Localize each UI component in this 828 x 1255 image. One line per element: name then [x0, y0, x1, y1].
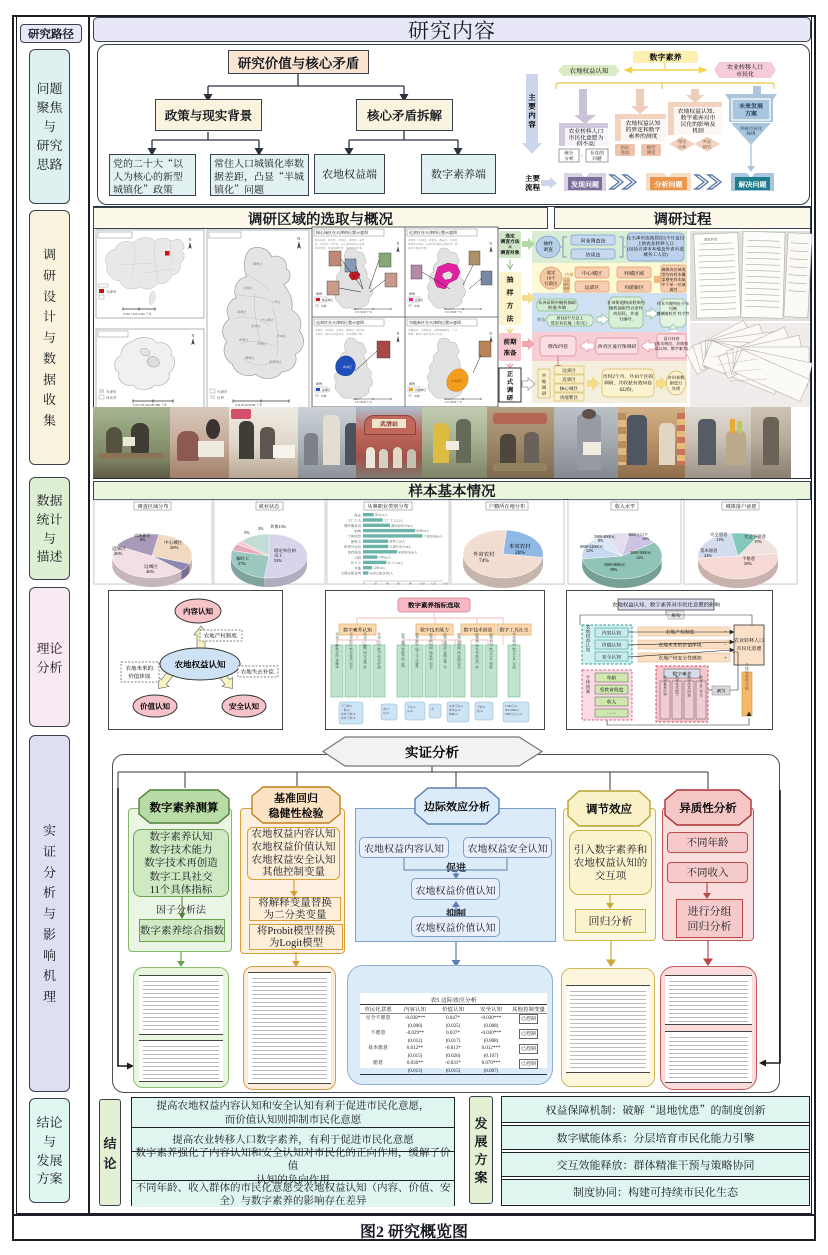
svg-text:滨海新区: 滨海新区 [451, 379, 463, 383]
svg-text:27%: 27% [238, 561, 246, 567]
svg-text:前期: 前期 [504, 337, 518, 346]
svg-text:城镇落户意愿: 城镇落户意愿 [725, 503, 757, 510]
svg-text:核心城区在天津的位置示意图: 核心城区在天津的位置示意图 [316, 230, 368, 236]
svg-text:调节效应: 调节效应 [586, 801, 632, 817]
svg-text:N: N [192, 333, 195, 339]
svg-text:功能新区: 功能新区 [624, 284, 644, 291]
svg-text:法: 法 [507, 314, 515, 324]
svg-text:非常了解=4: 非常了解=4 [341, 716, 356, 720]
svg-text:稳健性检验: 稳健性检验 [268, 805, 324, 821]
svg-text:是否有农地（有/无）: 是否有农地（有/无） [551, 321, 590, 327]
svg-text:15%: 15% [754, 539, 762, 545]
svg-text:基准回归: 基准回归 [274, 790, 318, 806]
svg-text:远郊区: 远郊区 [322, 388, 331, 392]
svg-text:0 15 30 60 千米: 0 15 30 60 千米 [355, 310, 372, 314]
svg-text:乡结合特征明显。: 乡结合特征明显。 [408, 246, 429, 250]
svg-text:数字素养认知: 数字素养认知 [343, 627, 372, 634]
svg-text:N: N [189, 237, 192, 243]
svg-text:调查: 调查 [543, 246, 553, 253]
svg-text:12%: 12% [636, 555, 644, 561]
svg-text:司机16人: 司机16人 [378, 555, 392, 560]
svg-text:市民化意愿: 市民化意愿 [736, 645, 761, 652]
svg-text:功能新区: 功能新区 [415, 388, 426, 392]
svg-text:40: 40 [386, 582, 390, 586]
svg-text:内容认知: 内容认知 [602, 630, 621, 637]
svg-text:农地未来的价值体现: 农地未来的价值体现 [658, 642, 701, 649]
svg-text:是否认可数字技术价值: 是否认可数字技术价值 [376, 632, 381, 670]
svg-text:调查问卷: 调查问卷 [704, 236, 718, 241]
svg-text:销售: 销售 [354, 528, 361, 533]
svg-text:流程: 流程 [525, 182, 540, 193]
svg-text:622份。: 622份。 [620, 386, 637, 393]
svg-text:个体因素: 个体因素 [585, 675, 591, 694]
svg-text:个体经营: 个体经营 [347, 534, 361, 539]
svg-text:收入水平: 收入水平 [615, 503, 636, 510]
svg-text:农地产权制度.: 农地产权制度. [204, 632, 239, 640]
svg-text:价值认知: 价值认知 [140, 701, 170, 712]
svg-text:熟练=3: 熟练=3 [449, 712, 458, 716]
svg-text:3%: 3% [258, 526, 264, 532]
svg-text:年龄: 年龄 [607, 675, 617, 682]
svg-text:宝坻区: 宝坻区 [243, 285, 253, 290]
svg-text:其他: 其他 [414, 304, 420, 308]
svg-text:调节: 调节 [716, 689, 726, 695]
svg-text:实证分析: 实证分析 [405, 741, 459, 761]
svg-text:西青区: 西青区 [239, 337, 249, 342]
svg-text:远郊区: 远郊区 [562, 368, 576, 374]
svg-text:安全认知: 安全认知 [602, 654, 621, 661]
svg-text:数字素养: 数字素养 [650, 52, 682, 63]
svg-text:……: …… [607, 710, 617, 717]
svg-text:0 15 30 60 千米: 0 15 30 60 千米 [445, 400, 462, 404]
svg-text:方案: 方案 [745, 109, 757, 118]
svg-text:保安: 保安 [354, 512, 361, 517]
svg-text:家政保洁38人: 家政保洁38人 [398, 549, 418, 554]
svg-text:数字技术创造: 数字技术创造 [686, 674, 691, 697]
svg-text:就业状态: 就业状态 [259, 503, 281, 510]
svg-text:+: + [580, 151, 584, 160]
svg-text:销售58人: 销售58人 [416, 528, 430, 533]
svg-text:74%: 74% [479, 556, 489, 564]
svg-text:52%: 52% [274, 558, 282, 564]
svg-text:是=2: 是=2 [383, 711, 389, 715]
svg-text:问题: 问题 [592, 156, 602, 162]
svg-text:快递外卖员28人: 快递外卖员28人 [389, 544, 412, 549]
svg-text:能否使用政务服务平台: 能否使用政务服务平台 [442, 632, 447, 670]
svg-text:农地权益认知: 农地权益认知 [585, 624, 591, 652]
svg-text:机制: 机制 [692, 126, 704, 135]
svg-text:样: 样 [506, 288, 514, 298]
svg-text:抽样: 抽样 [563, 286, 570, 291]
svg-text:属性: 属性 [670, 287, 678, 293]
svg-text:其他: 其他 [321, 394, 327, 398]
svg-text:工厂工人22人: 工厂工人22人 [384, 518, 404, 523]
svg-text:是否了解网络安全风险: 是否了解网络安全风险 [362, 632, 367, 670]
svg-text:N: N [489, 332, 492, 337]
svg-text:内容认知: 内容认知 [183, 606, 213, 617]
svg-text:筛选: 筛选 [537, 317, 545, 323]
svg-text:数字技术能力: 数字技术能力 [674, 674, 679, 696]
svg-text:近郊区: 近郊区 [415, 298, 424, 302]
svg-text:能=2: 能=2 [477, 709, 483, 713]
svg-text:环卫工26人: 环卫工26人 [387, 560, 404, 565]
svg-text:数字素养测算: 数字素养测算 [150, 800, 219, 816]
svg-text:数字素养指标选取: 数字素养指标选取 [408, 601, 461, 610]
svg-text:准备: 准备 [504, 348, 518, 357]
svg-text:经济发达，基础设施完善，城市化水平高。: 经济发达，基础设施完善，城市化水平高。 [315, 246, 364, 250]
svg-text:11%: 11% [716, 537, 724, 543]
svg-text:能否进行线上支付转账: 能否进行线上支付转账 [414, 632, 419, 669]
svg-text:宁河区，距中心城区较远，农业用地广阔。: 宁河区，距中心城区较远，农业用地广阔。 [315, 332, 364, 336]
svg-text:中心城区: 中心城区 [582, 270, 602, 277]
svg-text:天津市: 天津市 [106, 290, 117, 295]
svg-text:其他13%: 其他13% [270, 524, 287, 530]
svg-text:1000元以上=3: 1000元以上=3 [505, 712, 523, 716]
svg-text:核心城区: 核心城区 [322, 298, 333, 302]
svg-text:津南区: 津南区 [257, 341, 267, 346]
svg-text:调查对象: 调查对象 [499, 249, 519, 256]
svg-text:近郊区在天津的位置示意图: 近郊区在天津的位置示意图 [409, 230, 457, 236]
svg-text:0 15 30 60 千米: 0 15 30 60 千米 [355, 400, 372, 404]
svg-text:区界: 区界 [217, 396, 224, 401]
svg-text:28%: 28% [170, 545, 179, 551]
svg-text:何不高:: 何不高: [576, 139, 595, 148]
svg-text:修改问卷: 修改问卷 [548, 343, 568, 350]
svg-text:研究: 研究 [703, 145, 712, 151]
svg-text:是否了解数字设备操作: 是否了解数字设备操作 [334, 632, 339, 670]
svg-text:发现问题: 发现问题 [570, 180, 599, 190]
svg-text:−: − [724, 642, 727, 649]
svg-text:功能新区在天津的位置示意图: 功能新区在天津的位置示意图 [409, 320, 461, 326]
svg-text:分析: 分析 [564, 156, 574, 162]
svg-text:蓟州区: 蓟州区 [253, 261, 263, 266]
svg-text:远郊区在天津的位置示意图: 远郊区在天津的位置示意图 [316, 320, 364, 326]
svg-text:武清区: 武清区 [237, 309, 247, 314]
svg-text:静海区: 静海区 [245, 355, 255, 360]
svg-text:问卷调查法: 问卷调查法 [580, 238, 606, 245]
svg-text:无固定职业者: 无固定职业者 [341, 571, 362, 576]
svg-text:12%: 12% [586, 548, 594, 554]
svg-text:60: 60 [397, 582, 401, 586]
svg-text:益认知、数字素养): 益认知、数字素养) [655, 346, 689, 352]
svg-text:其他10人: 其他10人 [373, 565, 387, 570]
svg-text:能否利用数字工具增收: 能否利用数字工具增收 [488, 632, 493, 670]
svg-text:中心城区: 中心城区 [261, 317, 275, 322]
svg-text:容: 容 [528, 119, 536, 130]
svg-text:行政区: 行政区 [544, 281, 558, 287]
svg-text:西青区进行预调研: 西青区进行预调研 [598, 343, 637, 350]
svg-text:N: N [397, 242, 400, 247]
svg-text:集聚，吸纳大量外来务工人员。: 集聚，吸纳大量外来务工人员。 [408, 332, 444, 336]
svg-text:天津市: 天津市 [106, 390, 117, 395]
svg-text:司机: 司机 [354, 555, 361, 560]
svg-text:武清区: 武清区 [343, 365, 352, 369]
svg-text:140: 140 [443, 582, 448, 586]
svg-text:价值体现.: 价值体现. [128, 672, 152, 680]
svg-text:工厂工人: 工厂工人 [347, 518, 361, 523]
svg-text:遵循随机性 科学性: 遵循随机性 科学性 [657, 311, 690, 317]
svg-text:个体经营66人: 个体经营66人 [423, 533, 443, 538]
svg-text:能否制作发布数字内容: 能否制作发布数字内容 [474, 632, 479, 670]
svg-text:解决问题: 解决问题 [739, 180, 767, 190]
svg-text:边际效应分析: 边际效应分析 [424, 799, 490, 815]
svg-text:农地权益认知: 农地权益认知 [174, 659, 226, 671]
svg-text:宁河区: 宁河区 [271, 299, 281, 304]
svg-text:功能新区: 功能新区 [560, 395, 579, 401]
svg-text:家政保洁: 家政保洁 [347, 550, 361, 555]
svg-text:河北省: 河北省 [106, 396, 117, 401]
svg-text:远郊区: 远郊区 [584, 284, 599, 291]
svg-text:方: 方 [507, 301, 514, 311]
svg-text:东丽区: 东丽区 [277, 333, 287, 338]
svg-text:+: + [724, 655, 727, 662]
svg-text:滨海新区: 滨海新区 [269, 359, 283, 364]
svg-text:建筑工: 建筑工 [351, 539, 362, 544]
svg-text:图例: 图例 [316, 382, 322, 386]
svg-text:120: 120 [431, 582, 436, 586]
svg-text:会=2: 会=2 [407, 709, 413, 713]
svg-text:农地产权安全性感知: 农地产权安全性感知 [658, 655, 701, 662]
svg-text:价值认知: 价值认知 [602, 642, 621, 649]
svg-text:快递外卖员: 快递外卖员 [344, 544, 362, 549]
svg-text:近郊区: 近郊区 [562, 377, 576, 383]
svg-text:天津市: 天津市 [217, 390, 228, 395]
svg-text:分析: 分析 [678, 145, 687, 151]
svg-text:58%: 58% [610, 567, 618, 573]
svg-text:抽: 抽 [507, 275, 514, 285]
svg-text:是否关注数字资讯信息: 是否关注数字资讯信息 [348, 632, 353, 670]
svg-text:行编号.: 行编号. [619, 317, 633, 323]
svg-text:数字素养认知: 数字素养认知 [662, 674, 667, 696]
svg-text:从事职业类别分布: 从事职业类别分布 [367, 503, 409, 510]
svg-text:农业转移人口: 农业转移人口 [734, 637, 764, 644]
svg-text:20%: 20% [114, 551, 123, 557]
svg-text:餐饮服务员: 餐饮服务员 [344, 523, 362, 528]
svg-text:街道/乡镇: 街道/乡镇 [548, 305, 567, 311]
svg-text:无固定职业者6人: 无固定职业者6人 [369, 571, 394, 576]
svg-text:农地失去补偿.: 农地失去补偿. [241, 668, 276, 676]
svg-text:20: 20 [374, 582, 378, 586]
svg-text:26%: 26% [515, 548, 525, 556]
svg-text:调查区域分布: 调查区域分布 [137, 503, 168, 510]
svg-text:个体异质性分析: 个体异质性分析 [744, 662, 750, 691]
svg-text:其他: 其他 [321, 304, 327, 308]
svg-text:图例: 图例 [316, 292, 322, 296]
svg-text:素养的测度: 素养的测度 [629, 131, 658, 140]
svg-text:城务工人员): 城务工人员) [643, 252, 668, 258]
svg-text:图例: 图例 [409, 382, 415, 386]
svg-text:餐饮服务员30人: 餐饮服务员30人 [391, 523, 414, 528]
svg-text:农地权益认知: 农地权益认知 [570, 66, 610, 75]
svg-text:解构: 解构 [671, 613, 681, 619]
svg-text:受教育程度: 受教育程度 [600, 687, 624, 694]
svg-text:研: 研 [506, 393, 514, 402]
svg-text:异质性分析: 异质性分析 [679, 800, 737, 816]
svg-text:5%: 5% [244, 530, 250, 536]
svg-text:数字工具社交: 数字工具社交 [698, 674, 703, 697]
svg-text:收入: 收入 [607, 699, 617, 706]
svg-text:否: 否 [431, 707, 434, 711]
svg-text:分析问题: 分析问题 [654, 180, 683, 190]
svg-text:46%: 46% [146, 569, 155, 575]
svg-text:100: 100 [420, 582, 425, 586]
svg-text:80: 80 [409, 582, 413, 586]
svg-text:访谈法: 访谈法 [585, 252, 601, 259]
svg-text:障碍: 障碍 [747, 131, 756, 137]
svg-text:6%: 6% [140, 537, 146, 543]
svg-text:农地权益认知、数字素养对市民化意愿的影响: 农地权益认知、数字素养对市民化意愿的影响 [612, 601, 720, 609]
svg-text:能否使用智能手机应用: 能否使用智能手机应用 [400, 632, 405, 669]
svg-text:环城区域: 环城区域 [624, 270, 644, 277]
svg-text:市民化: 市民化 [736, 69, 754, 78]
svg-text:N: N [489, 242, 492, 247]
svg-text:选取: 选取 [621, 150, 630, 156]
svg-text:是否利用数字工具交流: 是否利用数字工具交流 [511, 632, 516, 670]
svg-text:能否利用网络获取信息: 能否利用网络获取信息 [428, 632, 433, 670]
svg-text:北辰区: 北辰区 [251, 323, 261, 328]
svg-text:农地未来的.: 农地未来的. [126, 664, 156, 672]
svg-text:户籍所在地分布: 户籍所在地分布 [489, 503, 525, 510]
svg-text:其他: 其他 [354, 565, 361, 570]
svg-text:建筑工28人: 建筑工28人 [389, 539, 406, 544]
svg-text:图例: 图例 [409, 292, 415, 296]
svg-text:保安12人: 保安12人 [375, 512, 389, 517]
svg-text:安全认知: 安全认知 [229, 701, 259, 712]
svg-text:50%: 50% [744, 561, 752, 567]
svg-text:24%: 24% [704, 553, 712, 559]
svg-text:核心城区: 核心城区 [560, 386, 579, 392]
svg-text:其他: 其他 [414, 394, 420, 398]
svg-text:0 15 30 60 千米: 0 15 30 60 千米 [445, 310, 462, 314]
svg-text:10%: 10% [642, 536, 650, 542]
svg-text:能否辨别网络虚假信息: 能否辨别网络虚假信息 [456, 632, 461, 670]
svg-text:研: 研 [542, 391, 547, 397]
svg-text:环卫工: 环卫工 [351, 560, 362, 565]
svg-text:N: N [397, 332, 400, 337]
svg-text:测度: 测度 [647, 150, 656, 156]
svg-text:处理: 处理 [672, 386, 681, 392]
